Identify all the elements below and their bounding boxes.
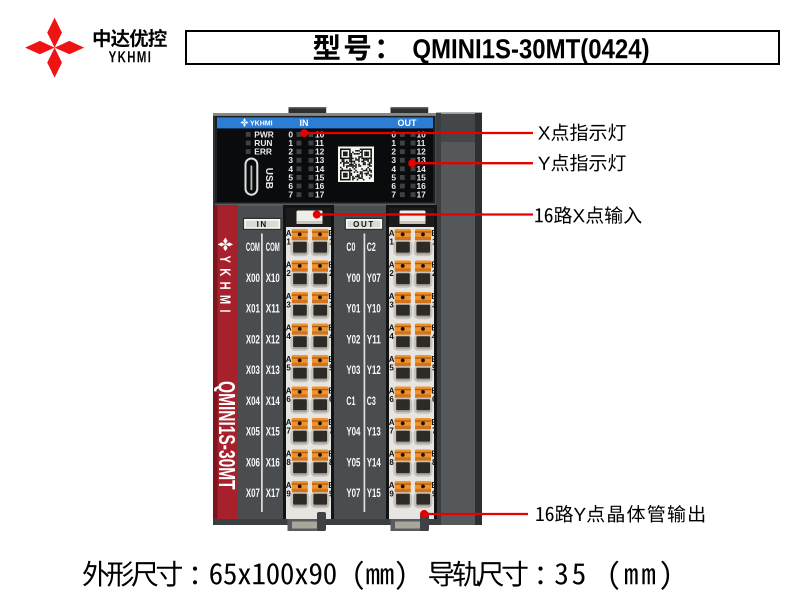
svg-text:8: 8 xyxy=(329,458,334,467)
svg-text:17: 17 xyxy=(417,190,427,200)
svg-text:X14: X14 xyxy=(266,396,280,408)
svg-text:OUT: OUT xyxy=(353,220,375,229)
svg-text:C0: C0 xyxy=(346,242,355,254)
svg-text:Y14: Y14 xyxy=(367,457,381,469)
svg-text:Y13: Y13 xyxy=(367,427,381,439)
svg-text:Y02: Y02 xyxy=(346,334,360,346)
svg-text:6: 6 xyxy=(286,395,291,404)
svg-text:X01: X01 xyxy=(246,304,260,316)
svg-text:3: 3 xyxy=(329,301,334,310)
svg-text:7: 7 xyxy=(389,427,394,436)
svg-text:7: 7 xyxy=(432,427,437,436)
svg-text:2: 2 xyxy=(432,269,437,278)
svg-text:1: 1 xyxy=(286,238,291,247)
svg-text:5: 5 xyxy=(389,364,394,373)
svg-text:17: 17 xyxy=(315,190,325,200)
svg-text:Y10: Y10 xyxy=(367,304,381,316)
svg-text:Y05: Y05 xyxy=(346,457,360,469)
svg-text:7: 7 xyxy=(288,190,293,200)
svg-text:ERR: ERR xyxy=(254,147,272,157)
svg-text:X02: X02 xyxy=(246,334,260,346)
svg-text:X07: X07 xyxy=(246,488,260,500)
svg-text:7: 7 xyxy=(391,190,396,200)
svg-text:X00: X00 xyxy=(246,273,260,285)
svg-text:8: 8 xyxy=(286,458,291,467)
svg-text:8: 8 xyxy=(432,458,437,467)
svg-text:IN: IN xyxy=(257,220,268,229)
svg-text:Y00: Y00 xyxy=(346,273,360,285)
svg-text:X11: X11 xyxy=(266,304,280,316)
svg-text:7: 7 xyxy=(329,427,334,436)
svg-text:2: 2 xyxy=(389,269,394,278)
svg-text:9: 9 xyxy=(389,490,394,499)
svg-text:6: 6 xyxy=(329,395,334,404)
svg-text:Y01: Y01 xyxy=(346,304,360,316)
svg-text:9: 9 xyxy=(329,490,334,499)
svg-text:5: 5 xyxy=(432,364,437,373)
svg-text:IN: IN xyxy=(300,118,309,128)
svg-text:4: 4 xyxy=(389,332,394,341)
svg-text:C3: C3 xyxy=(367,396,376,408)
svg-text:Y12: Y12 xyxy=(367,365,381,377)
svg-text:5: 5 xyxy=(329,364,334,373)
svg-text:X16: X16 xyxy=(266,457,280,469)
svg-text:X10: X10 xyxy=(266,273,280,285)
svg-text:3: 3 xyxy=(389,301,394,310)
svg-text:2: 2 xyxy=(329,269,334,278)
svg-text:COM: COM xyxy=(266,242,280,254)
svg-text:9: 9 xyxy=(286,490,291,499)
svg-text:Y11: Y11 xyxy=(367,334,381,346)
svg-text:6: 6 xyxy=(432,395,437,404)
svg-text:X06: X06 xyxy=(246,457,260,469)
svg-text:Y15: Y15 xyxy=(367,488,381,500)
svg-text:X17: X17 xyxy=(266,488,280,500)
svg-text:C1: C1 xyxy=(346,396,355,408)
svg-text:3: 3 xyxy=(432,301,437,310)
svg-text:X12: X12 xyxy=(266,334,280,346)
svg-text:6: 6 xyxy=(389,395,394,404)
svg-text:X03: X03 xyxy=(246,365,260,377)
svg-text:USB: USB xyxy=(263,168,274,189)
svg-text:2: 2 xyxy=(286,269,291,278)
svg-text:5: 5 xyxy=(286,364,291,373)
svg-text:4: 4 xyxy=(329,332,334,341)
svg-text:7: 7 xyxy=(286,427,291,436)
svg-text:1: 1 xyxy=(432,238,437,247)
svg-text:OUT: OUT xyxy=(398,118,418,128)
svg-text:8: 8 xyxy=(389,458,394,467)
svg-text:4: 4 xyxy=(286,332,291,341)
svg-text:X04: X04 xyxy=(246,396,260,408)
svg-text:1: 1 xyxy=(329,238,334,247)
svg-text:COM: COM xyxy=(246,242,260,254)
svg-text:QMINI1S-30MT: QMINI1S-30MT xyxy=(214,381,240,490)
svg-text:3: 3 xyxy=(286,301,291,310)
svg-text:1: 1 xyxy=(389,238,394,247)
svg-text:Y03: Y03 xyxy=(346,365,360,377)
svg-text:C2: C2 xyxy=(367,242,376,254)
svg-text:4: 4 xyxy=(432,332,437,341)
svg-text:Y07: Y07 xyxy=(367,273,381,285)
svg-text:Y04: Y04 xyxy=(346,427,360,439)
svg-text:X13: X13 xyxy=(266,365,280,377)
svg-text:Y07: Y07 xyxy=(346,488,360,500)
svg-text:YKHMI: YKHMI xyxy=(250,121,273,128)
svg-text:9: 9 xyxy=(432,490,437,499)
svg-text:X05: X05 xyxy=(246,427,260,439)
svg-text:X15: X15 xyxy=(266,427,280,439)
